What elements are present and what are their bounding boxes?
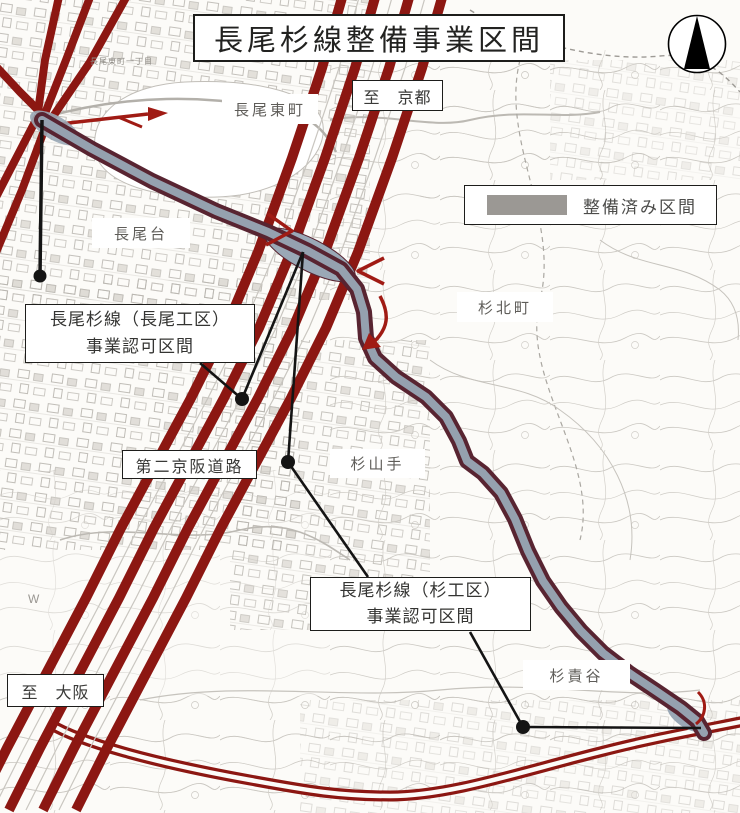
callout-sugi-line1: 長尾杉線（杉工区） bbox=[340, 578, 502, 604]
callout-sugi-line2: 事業認可区間 bbox=[367, 604, 475, 630]
callout-nagao-line1: 長尾杉線（長尾工区） bbox=[50, 307, 230, 333]
direction-box-kyoto: 至 京都 bbox=[352, 80, 443, 111]
road-label-daini-keihan: 第二京阪道路 bbox=[122, 450, 257, 479]
legend: 整備済み区間 bbox=[464, 185, 717, 225]
map-page: 長尾杉線整備事業区間 至 京都 至 大阪 第二京阪道路 長尾杉線（長尾工区） 事… bbox=[0, 0, 740, 813]
place-label-sugiyamate: 杉山手 bbox=[330, 449, 425, 478]
small-label-w: W bbox=[28, 592, 39, 606]
callout-nagao-line2: 事業認可区間 bbox=[86, 334, 194, 360]
callout-sugi-section: 長尾杉線（杉工区） 事業認可区間 bbox=[310, 577, 531, 631]
place-label-sugisekidani: 杉責谷 bbox=[523, 660, 630, 690]
direction-box-osaka: 至 大阪 bbox=[7, 674, 104, 707]
small-label-chome: 長尾東町一丁目 bbox=[90, 56, 153, 67]
callout-nagao-section: 長尾杉線（長尾工区） 事業認可区間 bbox=[25, 304, 255, 363]
dot-nagao-start bbox=[34, 270, 47, 283]
dot-sugi-end bbox=[516, 720, 530, 734]
place-label-nagao-higashimachi: 長尾東町 bbox=[222, 94, 318, 124]
dot-nagao-end bbox=[235, 392, 249, 406]
page-title: 長尾杉線整備事業区間 bbox=[193, 14, 565, 62]
legend-completed-swatch bbox=[487, 195, 567, 215]
north-arrow-icon bbox=[669, 16, 726, 73]
place-label-nagaodai: 長尾台 bbox=[92, 218, 190, 248]
place-label-sugikitamachi: 杉北町 bbox=[457, 292, 553, 322]
map-canvas bbox=[0, 0, 740, 813]
legend-completed-label: 整備済み区間 bbox=[583, 193, 697, 218]
dot-sugi-start bbox=[281, 455, 295, 469]
